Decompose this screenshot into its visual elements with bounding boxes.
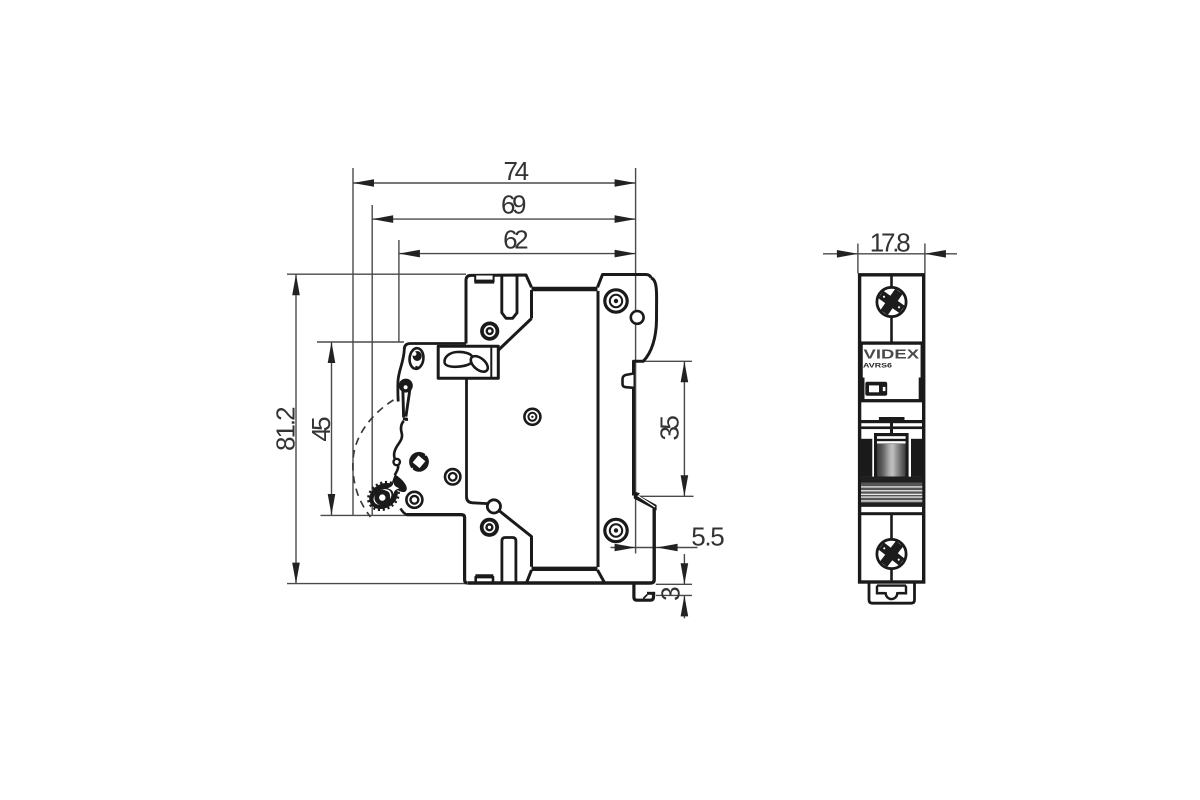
svg-text:62: 62: [503, 224, 529, 254]
svg-text:69: 69: [501, 190, 527, 220]
svg-text:81.2: 81.2: [270, 406, 300, 451]
svg-text:VIDEX: VIDEX: [864, 347, 920, 362]
svg-text:45: 45: [306, 416, 336, 441]
svg-text:AVRS6: AVRS6: [863, 363, 892, 370]
svg-text:17.8: 17.8: [870, 227, 911, 257]
svg-text:3: 3: [655, 586, 685, 600]
svg-text:35: 35: [655, 415, 685, 440]
svg-text:5.5: 5.5: [691, 521, 725, 551]
svg-text:74: 74: [504, 156, 530, 186]
